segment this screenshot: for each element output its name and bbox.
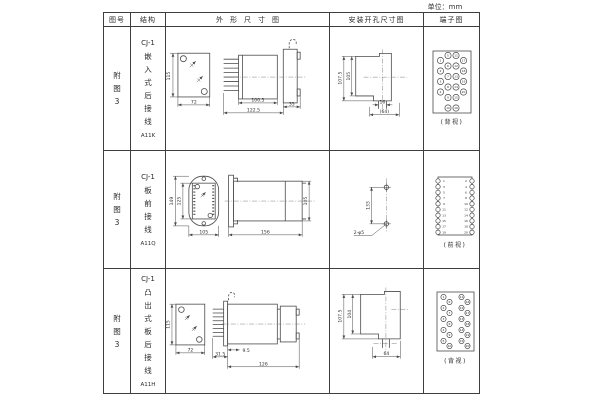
terminal-number: 1: [443, 179, 445, 183]
terminal-number: 19: [462, 79, 466, 83]
terminal-number: 20: [466, 344, 470, 348]
terminal-view-caption: (背视): [441, 118, 464, 126]
terminal-number: 3: [440, 79, 442, 83]
dim-offset: 9.5: [243, 348, 250, 354]
structure-cell-row3: CJ-1 凸出式板后接线 A11H: [131, 269, 166, 393]
terminal-number: 12: [460, 306, 464, 310]
terminal-number: 17: [442, 224, 446, 228]
install-hole-drawing: 133 2-φ5: [330, 151, 423, 269]
structure-cell-row1: CJ-1 嵌入式后接线 A11K: [131, 27, 166, 151]
coil-arrow-icon: [185, 315, 190, 320]
dim-outer-height: 107.5: [338, 310, 344, 323]
terminal-number: 19: [442, 230, 446, 234]
header-terminal: 端子图: [440, 15, 464, 25]
terminal-pin: [436, 207, 440, 211]
terminal-number: 8: [447, 85, 449, 89]
terminal-number: 3: [443, 184, 445, 188]
terminal-number: 12: [454, 64, 458, 68]
terminal-number: 7: [447, 74, 449, 78]
mounting-hook-icon: [229, 292, 235, 300]
coil-arrow-icon: [201, 192, 206, 197]
terminal-number: 9: [447, 95, 449, 99]
screw-hole-icon: [208, 213, 212, 217]
terminal-number: 7: [443, 196, 445, 200]
terminal-number: 18: [464, 224, 468, 228]
dim-hole-spacing: 133: [366, 201, 372, 210]
terminal-number: 11: [460, 295, 464, 299]
terminal-number: 18: [462, 69, 466, 73]
dim-front-width: 105: [199, 229, 208, 235]
install-cell-row1: 107.5 105 16 (64): [330, 27, 424, 151]
terminal-view-caption: (前视): [444, 241, 467, 249]
outline-cell-row3: 115 72 9.5 31.5: [166, 269, 330, 393]
front-view: 115 72: [166, 53, 210, 107]
terminal-number: 4: [440, 90, 442, 94]
terminal-number: 10: [446, 106, 450, 110]
outline-cell-row2: 149 125 105 156 105: [166, 151, 330, 269]
terminal-number: 14: [464, 213, 468, 217]
terminal-number: 13: [460, 317, 464, 321]
pivot-icon: [202, 176, 206, 180]
side-view: 100.5 122.5 35: [224, 39, 306, 114]
terminal-pin: [470, 213, 474, 217]
header-install: 安装开孔尺寸图: [349, 15, 405, 25]
figure-cell-row2: 附图3: [104, 151, 131, 269]
terminal-pin: [436, 184, 440, 188]
terminal-view-caption: (背视): [444, 357, 467, 365]
terminal-number: 12: [464, 207, 468, 211]
coil-arrow-icon: [192, 326, 197, 331]
terminal-number: 16: [466, 300, 470, 304]
screw-hole-icon: [180, 55, 186, 61]
outline-cell-row1: 115 72 100.5 122.5: [166, 27, 330, 151]
terminal-pin: [436, 195, 440, 199]
terminal-diagram: (前视) 1357911131517192468101214161820: [424, 151, 479, 269]
dim-total-length: 122.5: [247, 107, 260, 113]
terminal-cell-row2: (前视) 1357911131517192468101214161820: [424, 151, 479, 269]
terminal-number: 9: [443, 201, 445, 205]
screw-hole-icon: [195, 184, 199, 188]
install-cell-row3: 107.5 104 64: [330, 269, 424, 393]
terminal-number: 11: [454, 53, 458, 57]
coil-arrow-icon: [197, 76, 203, 82]
front-view: 115 72: [166, 304, 205, 355]
dim-side-length: 156: [261, 229, 270, 235]
terminal-number: 13: [442, 213, 446, 217]
terminal-cell-row1: (背视) 1234567891011121314151617181920: [424, 27, 479, 151]
dim-slot-width: 64: [383, 351, 389, 357]
terminal-diagram: (背视) 1234567891011121314151617181920: [424, 269, 479, 393]
terminal-number: 3: [443, 317, 445, 321]
structure-cell-row2: CJ-1 板前接线 A11Q: [131, 151, 166, 269]
dim-slot-width: 16: [380, 99, 386, 105]
model-label: CJ-1: [141, 173, 155, 181]
terminal-number: 11: [442, 207, 446, 211]
install-hole-drawing: 107.5 104 64: [330, 269, 423, 393]
mounting-hook-icon: [289, 39, 296, 48]
terminal-number: 16: [454, 106, 458, 110]
terminal-pin: [470, 230, 474, 234]
dim-outer-height: 149: [169, 196, 175, 205]
model-label: CJ-1: [141, 275, 155, 283]
figure-cell-row1: 附图3: [104, 27, 131, 151]
mounting-label: 嵌入式后接线: [143, 50, 154, 128]
terminal-pin: [470, 184, 474, 188]
figure-number: 附图3: [112, 312, 123, 351]
dim-inner-height: 104: [347, 310, 353, 319]
dim-body-length: 100.5: [251, 97, 264, 103]
terminal-number: 2: [440, 69, 442, 73]
dim-panel-width: 35: [289, 101, 295, 107]
dim-front-height: 115: [166, 71, 172, 80]
terminal-pin: [436, 201, 440, 205]
terminal-number: 15: [442, 219, 446, 223]
dim-front-width: 72: [187, 347, 193, 353]
dim-pin-length: 31.5: [215, 351, 225, 357]
terminal-number: 17: [466, 311, 470, 315]
outline-dimension-drawing: 149 125 105 156 105: [166, 151, 329, 269]
terminal-number: 17: [462, 58, 466, 62]
terminal-number: 4: [465, 184, 467, 188]
model-label: CJ-1: [141, 39, 155, 47]
install-hole-drawing: 107.5 105 16 (64): [330, 27, 423, 151]
terminal-number: 6: [447, 64, 449, 68]
dim-inner-height: 105: [346, 71, 352, 80]
terminal-number: 18: [466, 322, 470, 326]
terminal-pin: [436, 230, 440, 234]
side-view: 9.5 31.5 126: [213, 292, 305, 368]
figure-number: 附图3: [112, 190, 123, 229]
terminal-number: 16: [464, 219, 468, 223]
terminal-pin: [436, 178, 440, 182]
terminal-number: 14: [460, 328, 464, 332]
terminal-pin: [470, 190, 474, 194]
terminal-pins-icon: [213, 309, 224, 336]
terminal-number: 6: [449, 300, 451, 304]
code-label: A11K: [141, 133, 155, 139]
terminal-number: 7: [449, 311, 451, 315]
terminal-number: 20: [462, 90, 466, 94]
install-cell-row2: 133 2-φ5: [330, 151, 424, 269]
terminal-number: 14: [454, 85, 458, 89]
screw-hole-icon: [197, 337, 203, 343]
screw-hole-icon: [179, 307, 185, 313]
terminal-pin: [470, 224, 474, 228]
terminal-number: 10: [448, 344, 452, 348]
terminal-number: 5: [443, 190, 445, 194]
dimension-table: 图号 结构 外形尺寸图 安装开孔尺寸图 端子图 附图3 CJ-1 嵌入式后接线 …: [103, 12, 480, 394]
terminal-number: 1: [443, 295, 445, 299]
dim-outer-height: 107.5: [337, 71, 343, 84]
code-label: A11Q: [140, 241, 155, 247]
dim-body-length: 126: [259, 361, 268, 367]
terminal-number: 15: [454, 95, 458, 99]
outline-dimension-drawing: 115 72 9.5 31.5: [166, 269, 329, 393]
front-view: 149 125 105: [169, 176, 219, 237]
terminal-pin: [436, 213, 440, 217]
terminal-pin: [436, 190, 440, 194]
terminal-pin: [436, 218, 440, 222]
dim-side-height: 105: [303, 196, 309, 205]
terminal-number: 20: [464, 230, 468, 234]
terminal-number: 5: [447, 53, 449, 57]
terminal-number: 4: [443, 328, 445, 332]
outline-dimension-drawing: 115 72 100.5 122.5: [166, 27, 329, 151]
terminal-number: 13: [454, 74, 458, 78]
dim-span-width: (64): [380, 109, 390, 115]
terminal-pins-icon: [224, 59, 239, 90]
pivot-icon: [202, 221, 206, 225]
mounting-label: 凸出式板后接线: [143, 286, 154, 377]
terminal-number: 2: [443, 306, 445, 310]
header-outline: 外形尺寸图: [209, 15, 286, 25]
terminal-pin: [470, 195, 474, 199]
terminal-number: 8: [449, 322, 451, 326]
terminal-number: 15: [460, 339, 464, 343]
mounting-label: 板前接线: [143, 184, 154, 236]
terminal-number: 8: [465, 196, 467, 200]
dim-inner-height: 125: [177, 196, 183, 205]
figure-cell-row3: 附图3: [104, 269, 131, 393]
unit-label: 单位：mm: [410, 2, 480, 12]
screw-hole-icon: [201, 88, 207, 94]
header-structure: 结构: [140, 15, 156, 25]
header-figure-no: 图号: [109, 15, 125, 25]
terminal-number: 5: [443, 339, 445, 343]
coil-arrow-icon: [190, 61, 196, 67]
terminal-number: 9: [449, 333, 451, 337]
terminal-diagram: (背视) 1234567891011121314151617181920: [424, 27, 479, 151]
terminal-cell-row3: (背视) 1234567891011121314151617181920: [424, 269, 479, 393]
dim-front-width: 72: [191, 99, 197, 105]
terminal-pin: [436, 224, 440, 228]
terminal-number: 6: [465, 190, 467, 194]
terminal-pin: [470, 207, 474, 211]
terminal-number: 19: [466, 333, 470, 337]
terminal-number: 10: [464, 201, 468, 205]
terminal-number: 1: [440, 58, 442, 62]
side-view: 156 105: [225, 175, 315, 237]
code-label: A11H: [141, 382, 156, 388]
terminal-pin: [470, 218, 474, 222]
terminal-pin: [470, 178, 474, 182]
figure-number: 附图3: [112, 69, 123, 108]
hole-label: 2-φ5: [354, 230, 365, 236]
terminal-number: 2: [465, 179, 467, 183]
terminal-pin: [470, 201, 474, 205]
dim-front-height: 115: [166, 320, 172, 329]
